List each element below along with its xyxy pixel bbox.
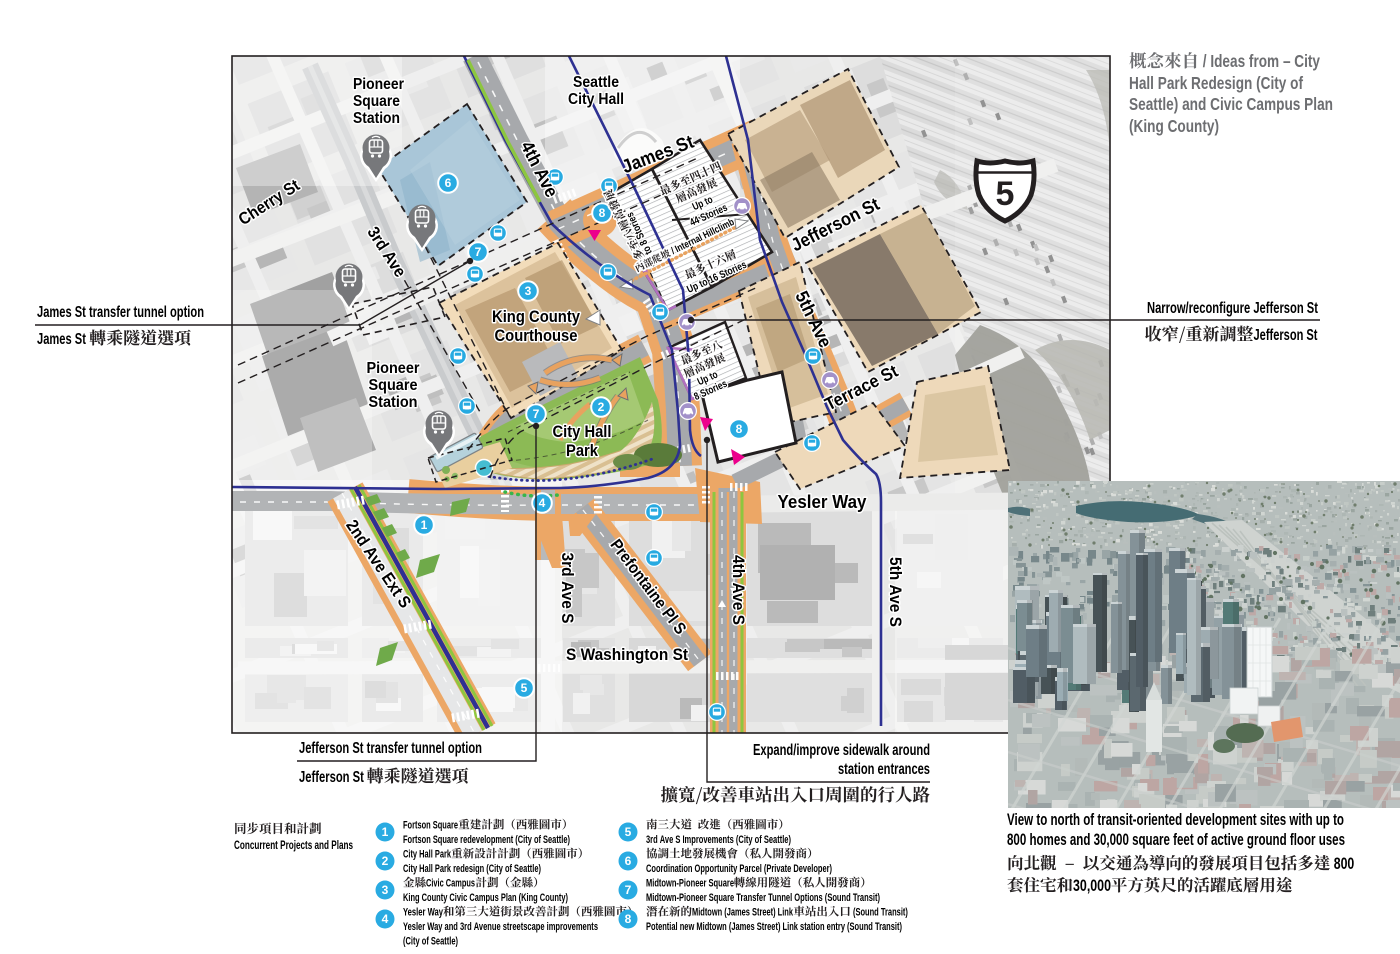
svg-text:Potential new Midtown (James S: Potential new Midtown (James Street) Lin… bbox=[646, 921, 902, 933]
svg-text:Jefferson St: Jefferson St bbox=[299, 769, 367, 786]
svg-text:Courthouse: Courthouse bbox=[495, 327, 578, 345]
svg-text:Civic Campus: Civic Campus bbox=[426, 878, 475, 890]
svg-text:Yesler Way and 3rd Avenue stre: Yesler Way and 3rd Avenue streetscape im… bbox=[403, 921, 598, 933]
svg-text:King County: King County bbox=[492, 308, 581, 326]
svg-text:6: 6 bbox=[625, 854, 632, 868]
svg-text:Jefferson St: Jefferson St bbox=[1254, 327, 1318, 344]
svg-text:5: 5 bbox=[996, 175, 1015, 213]
svg-text:S Washington St: S Washington St bbox=[566, 645, 688, 664]
svg-text:8: 8 bbox=[736, 422, 743, 436]
svg-text:Jefferson St transfer tunnel o: Jefferson St transfer tunnel option bbox=[299, 740, 482, 757]
svg-text:View to north of transit-orien: View to north of transit-oriented develo… bbox=[1007, 811, 1344, 829]
svg-text:Midtown (James Street) Link: Midtown (James Street) Link bbox=[692, 907, 794, 919]
svg-text:2: 2 bbox=[382, 854, 389, 868]
svg-text:7: 7 bbox=[475, 245, 482, 259]
svg-text:1: 1 bbox=[382, 825, 389, 839]
svg-text:8: 8 bbox=[599, 206, 606, 220]
svg-text:Yesler Way: Yesler Way bbox=[778, 491, 868, 512]
svg-text:James St transfer tunnel optio: James St transfer tunnel option bbox=[37, 304, 204, 321]
svg-text:Station: Station bbox=[353, 110, 400, 127]
svg-text:(King County): (King County) bbox=[1129, 116, 1219, 136]
svg-text:Fortson Square redevelopment (: Fortson Square redevelopment (City of Se… bbox=[403, 834, 570, 846]
svg-text:(City of Seattle): (City of Seattle) bbox=[403, 936, 458, 948]
svg-text:(Sound Transit): (Sound Transit) bbox=[851, 907, 908, 919]
svg-text:Hall Park Redesign (City of: Hall Park Redesign (City of bbox=[1129, 73, 1303, 93]
svg-text:3: 3 bbox=[382, 883, 389, 897]
svg-text:5: 5 bbox=[625, 825, 632, 839]
svg-text:7: 7 bbox=[625, 883, 632, 897]
svg-text:Seattle) and Civic Campus Plan: Seattle) and Civic Campus Plan bbox=[1129, 94, 1333, 114]
svg-text:City Hall Park redesign (City: City Hall Park redesign (City of Seattle… bbox=[403, 863, 541, 875]
svg-text:City Hall Park: City Hall Park bbox=[403, 849, 452, 861]
svg-text:James St: James St bbox=[37, 331, 89, 348]
svg-text:5th Ave S: 5th Ave S bbox=[886, 557, 905, 627]
svg-text:Pioneer: Pioneer bbox=[353, 76, 404, 93]
svg-text:3: 3 bbox=[525, 284, 532, 298]
svg-text:2: 2 bbox=[598, 400, 605, 414]
svg-text:Midtown-Pioneer Square Transfe: Midtown-Pioneer Square Transfer Tunnel O… bbox=[646, 892, 880, 904]
svg-text:Expand/improve sidewalk around: Expand/improve sidewalk around bbox=[753, 742, 930, 759]
svg-text:5: 5 bbox=[521, 681, 528, 695]
svg-text:Yesler Way: Yesler Way bbox=[403, 907, 444, 919]
svg-text:City Hall: City Hall bbox=[553, 423, 612, 441]
svg-text:4: 4 bbox=[382, 912, 389, 926]
svg-text:3rd Ave S Improvements (City o: 3rd Ave S Improvements (City of Seattle) bbox=[646, 834, 791, 846]
svg-text:Midtown-Pioneer Square: Midtown-Pioneer Square bbox=[646, 878, 734, 890]
svg-text:City Hall: City Hall bbox=[568, 91, 624, 108]
svg-text:8: 8 bbox=[625, 912, 632, 926]
svg-text:800 homes and 30,000 square fe: 800 homes and 30,000 square feet of acti… bbox=[1007, 831, 1345, 849]
svg-text:800: 800 bbox=[1330, 855, 1354, 873]
svg-text:Square: Square bbox=[353, 93, 400, 110]
svg-text:Coordination Opportunity Parce: Coordination Opportunity Parcel (Private… bbox=[646, 863, 832, 875]
svg-text:Square: Square bbox=[369, 377, 418, 394]
svg-text:Fortson Square: Fortson Square bbox=[403, 820, 458, 832]
svg-text:7: 7 bbox=[533, 407, 540, 421]
svg-text:Station: Station bbox=[369, 394, 418, 411]
svg-text:/ Ideas from – City: / Ideas from – City bbox=[1199, 51, 1320, 71]
svg-text:Park: Park bbox=[566, 442, 599, 460]
svg-text:4: 4 bbox=[539, 496, 546, 510]
svg-text:3rd Ave S: 3rd Ave S bbox=[558, 553, 577, 624]
svg-text:30,000: 30,000 bbox=[1073, 877, 1111, 895]
svg-text:station entrances: station entrances bbox=[838, 761, 930, 778]
svg-text:1: 1 bbox=[421, 518, 428, 532]
svg-text:4th Ave S: 4th Ave S bbox=[729, 555, 748, 625]
svg-text:Pioneer: Pioneer bbox=[367, 360, 420, 377]
svg-text:Seattle: Seattle bbox=[573, 74, 619, 91]
svg-text:Narrow/reconfigure Jefferson S: Narrow/reconfigure Jefferson St bbox=[1147, 300, 1318, 317]
svg-text:King County Civic Campus Plan: King County Civic Campus Plan (King Coun… bbox=[403, 892, 568, 904]
svg-text:Concurrent Projects and Plans: Concurrent Projects and Plans bbox=[234, 838, 353, 852]
svg-text:6: 6 bbox=[445, 176, 452, 190]
